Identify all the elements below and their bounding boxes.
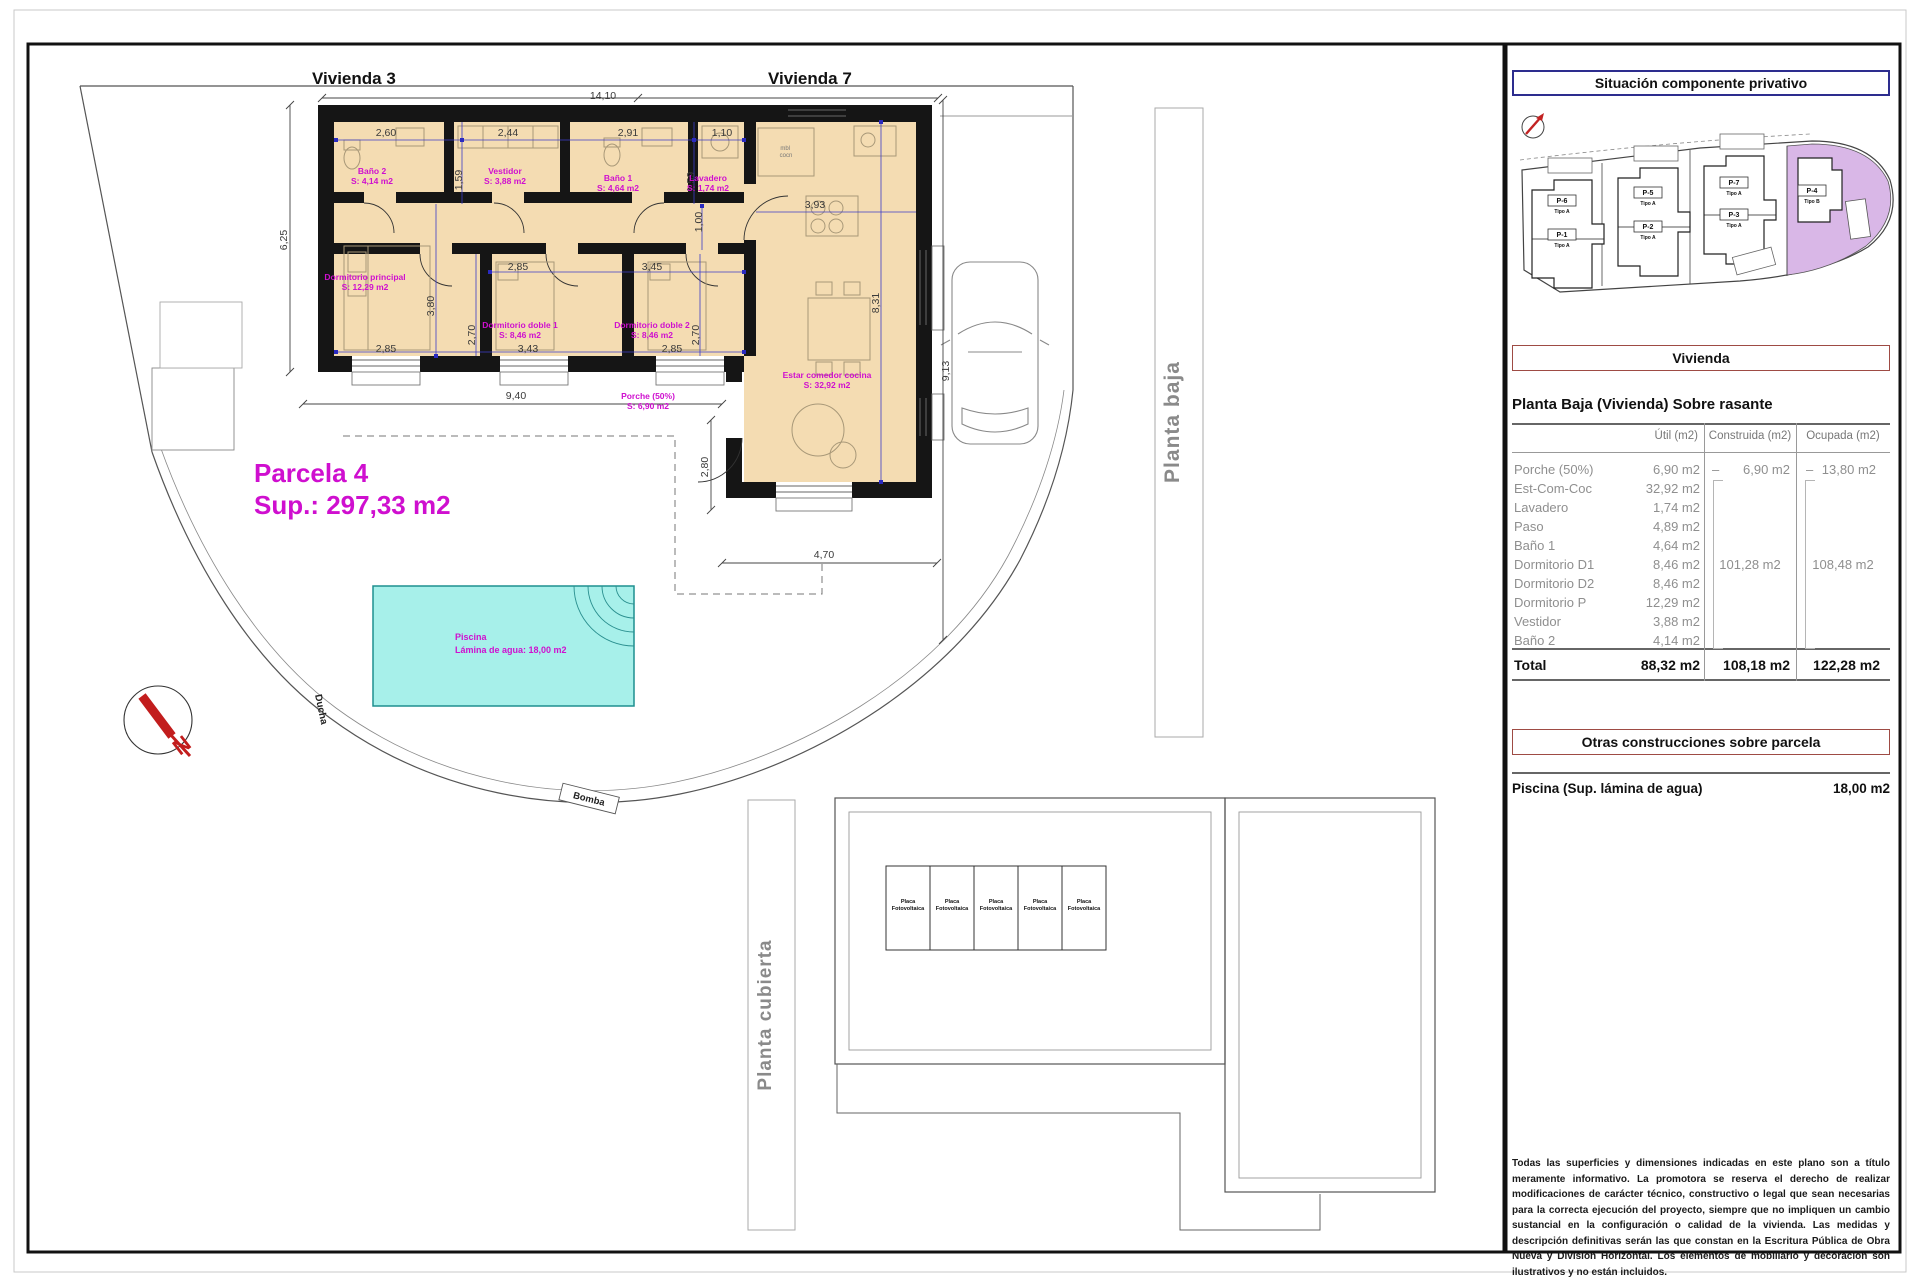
- solar-panel: PlacaFotovoltaica: [1018, 866, 1062, 950]
- planta-baja-strip: Planta baja: [1155, 108, 1203, 737]
- total-label: Total: [1512, 657, 1632, 673]
- row-util: 8,46 m2: [1632, 557, 1706, 572]
- row-label: Dormitorio D2: [1512, 576, 1632, 591]
- dimension-label: 3,45: [642, 261, 663, 273]
- table-rows: Porche (50%)6,90 m2–6,90 m2–13,80 m2Est-…: [1512, 460, 1890, 650]
- solar-panel: PlacaFotovoltaica: [930, 866, 974, 950]
- total-ocupada: 122,28 m2: [1798, 657, 1884, 673]
- disclaimer-text: Todas las superficies y dimensiones indi…: [1512, 1156, 1890, 1280]
- areas-table: Útil (m2) Construida (m2) Ocupada (m2) P…: [1512, 423, 1890, 681]
- solar-panel: PlacaFotovoltaica: [1062, 866, 1106, 950]
- row-util: 4,64 m2: [1632, 538, 1706, 553]
- room-label: VestidorS: 3,88 m2: [484, 166, 526, 186]
- north-compass: N: [124, 686, 196, 760]
- row-label: Baño 1: [1512, 538, 1632, 553]
- group-ocupada: 108,48 m2: [1796, 557, 1890, 572]
- parcela-area: Sup.: 297,33 m2: [254, 490, 451, 520]
- col-header-util: Útil (m2): [1630, 430, 1698, 442]
- total-construida: 108,18 m2: [1706, 657, 1798, 673]
- row-label: Dormitorio D1: [1512, 557, 1632, 572]
- row-ocupada: –13,80 m2: [1798, 462, 1884, 477]
- dimension-label: 2,60: [376, 127, 397, 139]
- vivienda-title: Vivienda: [1672, 350, 1729, 366]
- vivienda-3-label: Vivienda 3: [312, 69, 396, 88]
- otras-divider: [1512, 772, 1890, 774]
- row-util: 12,29 m2: [1632, 595, 1706, 610]
- svg-text:P-1: P-1: [1557, 232, 1568, 239]
- otras-title: Otras construcciones sobre parcela: [1582, 734, 1821, 750]
- svg-text:Tipo A: Tipo A: [1726, 223, 1742, 229]
- solar-panel: PlacaFotovoltaica: [974, 866, 1018, 950]
- car: [941, 262, 1049, 444]
- dimension-label: 2,70: [466, 325, 478, 346]
- dimension-label: 1,00: [693, 212, 705, 233]
- entrance-step: [152, 368, 234, 450]
- kitchen-note: mbl cocn: [780, 146, 793, 159]
- table-row: Est-Com-Coc32,92 m2: [1512, 479, 1890, 498]
- dimension-label: 2,85: [376, 343, 397, 355]
- row-label: Porche (50%): [1512, 462, 1632, 477]
- total-util: 88,32 m2: [1632, 657, 1706, 673]
- dimension-label: 3,80: [425, 296, 437, 317]
- row-label: Dormitorio P: [1512, 595, 1632, 610]
- roof-plan: Planta cubierta PlacaFotovoltaicaPlacaFo…: [748, 798, 1435, 1230]
- room-label: LavaderoS: 1,74 m2: [687, 173, 729, 193]
- piscina-row: Piscina (Sup. lámina de agua) 18,00 m2: [1512, 781, 1890, 796]
- svg-text:Tipo A: Tipo A: [1726, 191, 1742, 197]
- svg-text:P-4: P-4: [1807, 188, 1818, 195]
- solar-panel: PlacaFotovoltaica: [886, 866, 930, 950]
- table-row: Baño 14,64 m2: [1512, 536, 1890, 555]
- svg-text:Tipo A: Tipo A: [1554, 243, 1570, 249]
- svg-text:P-7: P-7: [1729, 180, 1740, 187]
- site-plan: P-6Tipo AP-1Tipo AP-5Tipo AP-2Tipo AP-7T…: [1520, 134, 1893, 292]
- svg-text:P-5: P-5: [1643, 190, 1654, 197]
- row-util: 4,14 m2: [1632, 633, 1706, 648]
- bomba-box: Bomba: [559, 783, 619, 814]
- row-label: Paso: [1512, 519, 1632, 534]
- svg-text:Tipo A: Tipo A: [1640, 201, 1656, 207]
- row-util: 32,92 m2: [1632, 481, 1706, 496]
- dimension-label: 4,70: [814, 549, 835, 561]
- table-title: Planta Baja (Vivienda) Sobre rasante: [1512, 396, 1890, 413]
- row-label: Est-Com-Coc: [1512, 481, 1632, 496]
- solar-panels: PlacaFotovoltaicaPlacaFotovoltaicaPlacaF…: [886, 866, 1106, 950]
- svg-text:Tipo A: Tipo A: [1640, 235, 1656, 241]
- dimension-label: 6,25: [278, 230, 290, 251]
- ducha-label: Ducha: [312, 693, 329, 726]
- vivienda-title-box: Vivienda: [1512, 345, 1890, 371]
- row-construida: –6,90 m2: [1706, 462, 1798, 477]
- row-util: 8,46 m2: [1632, 576, 1706, 591]
- piscina-value: 18,00 m2: [1833, 781, 1890, 796]
- svg-text:Planta baja: Planta baja: [1161, 361, 1184, 483]
- table-row: Baño 24,14 m2: [1512, 631, 1890, 650]
- piscina-label: Piscina (Sup. lámina de agua): [1512, 781, 1703, 796]
- group-construida: 101,28 m2: [1704, 557, 1796, 572]
- table-row: Porche (50%)6,90 m2–6,90 m2–13,80 m2: [1512, 460, 1890, 479]
- situacion-title-box: Situación componente privativo: [1512, 70, 1890, 96]
- row-label: Vestidor: [1512, 614, 1632, 629]
- table-row: Paso4,89 m2: [1512, 517, 1890, 536]
- otras-title-box: Otras construcciones sobre parcela: [1512, 729, 1890, 755]
- dimension-label: 2,91: [618, 127, 639, 139]
- dimension-label: 8,31: [870, 293, 882, 314]
- pool: Piscina Lámina de agua: 18,00 m2: [373, 586, 634, 706]
- dimension-label: 14,10: [590, 90, 616, 102]
- row-util: 4,89 m2: [1632, 519, 1706, 534]
- plan-sheet: Piscina Lámina de agua: 18,00 m2: [0, 0, 1920, 1280]
- table-row: Lavadero1,74 m2: [1512, 498, 1890, 517]
- dimension-label: 2,85: [508, 261, 529, 273]
- dimension-label: 2,85: [662, 343, 683, 355]
- table-row: Dormitorio D28,46 m2: [1512, 574, 1890, 593]
- svg-text:P-2: P-2: [1643, 224, 1654, 231]
- dimension-label: 2,44: [498, 127, 519, 139]
- svg-text:Tipo A: Tipo A: [1554, 209, 1570, 215]
- planta-cubierta-strip: Planta cubierta: [748, 800, 795, 1230]
- side-platform: [160, 302, 242, 368]
- dimension-label: 1,59: [453, 170, 465, 191]
- table-row: Dormitorio P12,29 m2: [1512, 593, 1890, 612]
- col-header-construida: Construida (m2): [1704, 430, 1796, 442]
- svg-text:Tipo B: Tipo B: [1804, 199, 1820, 205]
- svg-text:P-3: P-3: [1729, 212, 1740, 219]
- svg-text:Planta cubierta: Planta cubierta: [755, 939, 776, 1090]
- dimension-label: 3,93: [805, 199, 826, 211]
- col-header-ocupada: Ocupada (m2): [1796, 430, 1890, 442]
- row-util: 1,74 m2: [1632, 500, 1706, 515]
- situacion-title: Situación componente privativo: [1595, 75, 1807, 91]
- row-util: 3,88 m2: [1632, 614, 1706, 629]
- dimension-label: 3,43: [518, 343, 539, 355]
- room-label: Porche (50%)S: 6,90 m2: [621, 391, 675, 411]
- dimension-label: 1,10: [712, 127, 733, 139]
- row-label: Lavadero: [1512, 500, 1632, 515]
- vivienda-7-label: Vivienda 7: [768, 69, 852, 88]
- row-label: Baño 2: [1512, 633, 1632, 648]
- table-row: Vestidor3,88 m2: [1512, 612, 1890, 631]
- row-util: 6,90 m2: [1632, 462, 1706, 477]
- dimension-label: 2,70: [690, 325, 702, 346]
- dimension-label: 9,40: [506, 390, 527, 402]
- panel-compass-icon: [1522, 113, 1544, 138]
- dimension-label: 9,13: [940, 361, 952, 382]
- svg-text:P-6: P-6: [1557, 198, 1568, 205]
- dimension-label: 2,80: [699, 457, 711, 478]
- total-row: Total 88,32 m2 108,18 m2 122,28 m2: [1512, 652, 1890, 678]
- parcela-title: Parcela 4: [254, 458, 369, 488]
